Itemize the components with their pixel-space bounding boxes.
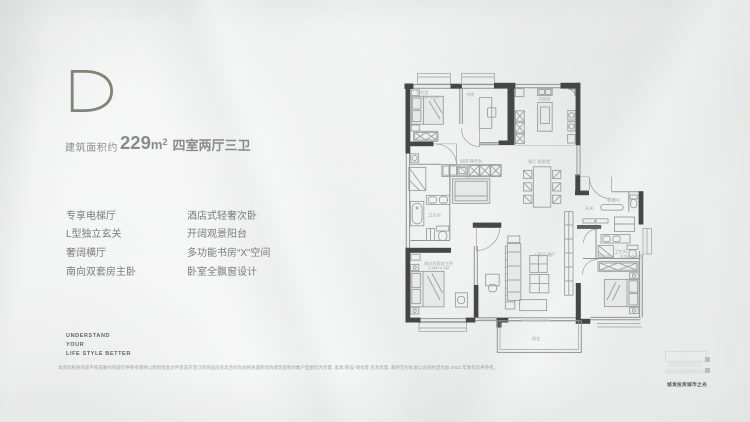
svg-text:玄关: 玄关 — [585, 205, 593, 212]
svg-text:餐厅·投影墙: 餐厅·投影墙 — [528, 158, 550, 165]
svg-text:阳台: 阳台 — [532, 335, 540, 342]
svg-text:3.8M×4.5M: 3.8M×4.5M — [428, 266, 450, 271]
svg-text:西厨·操作台: 西厨·操作台 — [460, 158, 482, 165]
svg-text:次卧室: 次卧室 — [598, 253, 611, 260]
svg-text:3.0M×3.6M: 3.0M×3.6M — [620, 254, 642, 259]
svg-text:卫生间: 卫生间 — [428, 211, 441, 218]
svg-text:中厨房: 中厨房 — [538, 96, 551, 103]
svg-text:L客厅·横厅: L客厅·横厅 — [535, 251, 555, 258]
svg-text:书房: 书房 — [466, 91, 474, 98]
svg-text:鞋帽间: 鞋帽间 — [607, 197, 620, 204]
svg-text:3.3M×3.6M: 3.3M×3.6M — [418, 95, 440, 100]
